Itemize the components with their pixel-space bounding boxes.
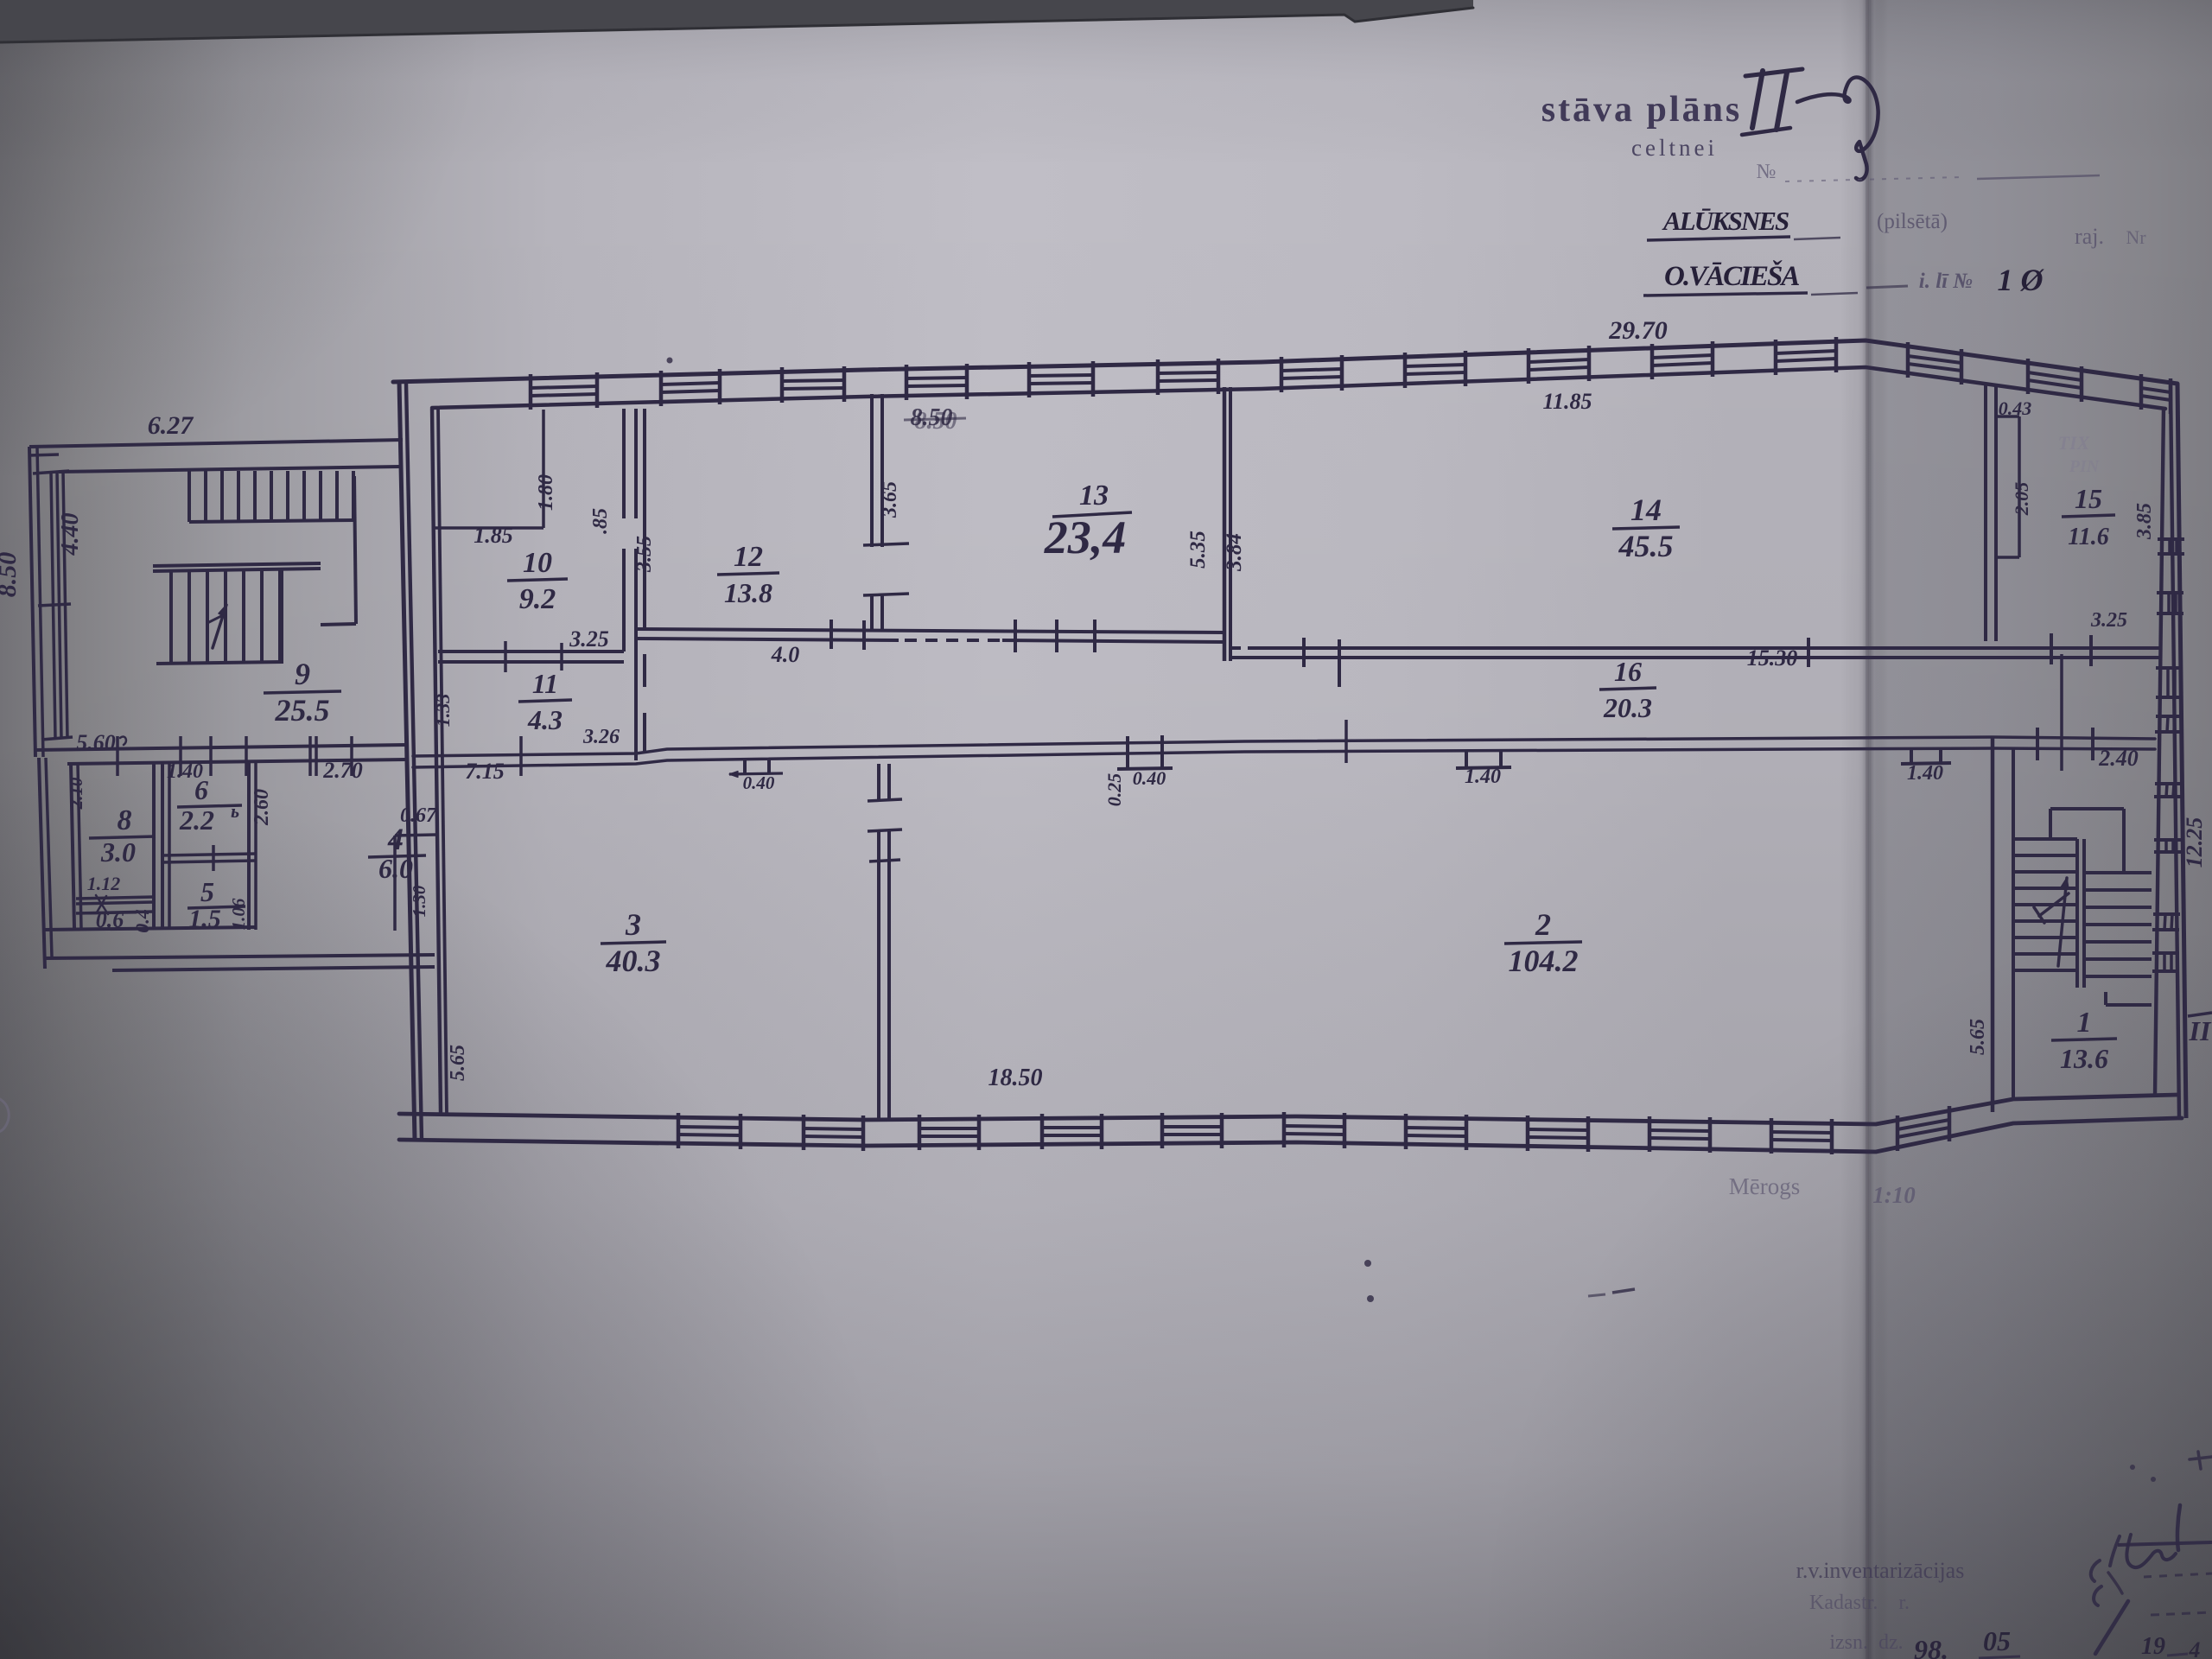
svg-text:№: № [1757,161,1777,183]
svg-text:1.80: 1.80 [535,474,557,511]
svg-text:40.3: 40.3 [606,944,661,978]
svg-text:2.10: 2.10 [66,777,86,810]
svg-text:5.65: 5.65 [1967,1019,1989,1055]
svg-text:0.40: 0.40 [743,772,775,793]
svg-text:8.50: 8.50 [0,552,22,598]
svg-text:Mērogs: Mērogs [1729,1173,1801,1199]
svg-text:2.70: 2.70 [322,758,363,783]
svg-text:1.40: 1.40 [1907,762,1943,785]
svg-text:98.: 98. [1914,1634,1948,1659]
svg-text:ь: ь [231,800,239,822]
svg-text:O.VĀCIEŠA: O.VĀCIEŠA [1664,259,1799,292]
svg-text:3.25: 3.25 [569,626,609,652]
svg-text:45.5: 45.5 [1618,529,1674,563]
svg-text:7.15: 7.15 [465,759,505,784]
svg-text:4: 4 [2189,1637,2201,1659]
svg-text:r.v.inventarizācijas: r.v.inventarizācijas [1796,1558,1965,1583]
svg-text:6.0: 6.0 [378,853,413,884]
svg-text:Nr: Nr [2126,226,2146,248]
svg-text:raj.: raj. [2075,224,2104,249]
svg-text:Kadastr. r.: Kadastr. r. [1809,1592,1910,1614]
svg-text:6.27: 6.27 [148,411,194,440]
svg-text:2.05: 2.05 [2011,482,2032,517]
svg-text:celtnei: celtnei [1631,135,1718,161]
svg-text:9.2: 9.2 [519,583,556,615]
svg-text:05: 05 [1983,1625,2011,1656]
svg-text:5.35: 5.35 [1186,531,1210,569]
svg-text:11.85: 11.85 [1542,389,1592,414]
svg-text:3.65: 3.65 [879,481,901,518]
svg-text:4: 4 [387,822,404,856]
svg-text:11.6: 11.6 [2068,524,2108,550]
svg-text:15.30: 15.30 [1747,645,1798,671]
svg-text:18.50: 18.50 [988,1065,1043,1091]
svg-text:.85: .85 [589,508,612,534]
svg-text:ALŪKSNES: ALŪKSNES [1662,206,1789,236]
svg-text:20.3: 20.3 [1603,692,1652,723]
svg-text:5.60: 5.60 [76,730,116,755]
svg-text:izsn. dz.: izsn. dz. [1829,1631,1903,1654]
svg-text:8.50: 8.50 [915,408,957,435]
svg-text:0.4: 0.4 [131,909,153,933]
svg-text:PIN: PIN [2069,457,2101,476]
svg-text:3.0: 3.0 [100,836,136,868]
svg-text:12.25: 12.25 [2182,817,2207,868]
svg-text:11: 11 [532,668,558,699]
svg-text:1:10: 1:10 [1872,1182,1916,1208]
svg-text:5: 5 [200,876,214,907]
svg-text:1.33: 1.33 [432,694,454,728]
svg-text:3.26: 3.26 [582,726,620,748]
svg-text:stāva plāns: stāva plāns [1541,90,1743,130]
svg-text:13.8: 13.8 [724,577,772,608]
svg-text:1: 1 [2077,1007,2092,1039]
svg-text:23,4: 23,4 [1044,512,1127,563]
svg-text:1 Ø: 1 Ø [1998,263,2045,297]
svg-text:3: 3 [625,907,641,942]
svg-text:12: 12 [734,541,763,573]
svg-text:TIX: TIX [2058,432,2091,454]
svg-text:(pilsētā): (pilsētā) [1877,210,1948,233]
svg-text:1.06: 1.06 [228,898,249,930]
svg-text:4.40: 4.40 [57,513,84,556]
svg-text:3.55: 3.55 [633,536,656,573]
svg-text:0.40: 0.40 [1133,767,1166,789]
svg-text:4.0: 4.0 [771,642,800,667]
svg-text:13.6: 13.6 [2060,1043,2108,1074]
svg-text:1.5: 1.5 [188,905,221,933]
svg-text:i. lī №: i. lī № [1919,270,1973,293]
svg-text:2: 2 [1535,907,1551,942]
svg-text:II: II [2189,1015,2212,1046]
svg-text:1.85: 1.85 [474,523,513,548]
svg-text:104.2: 104.2 [1509,944,1579,978]
svg-text:6: 6 [194,774,208,805]
svg-text:14: 14 [1630,493,1662,527]
svg-text:8: 8 [118,804,132,836]
svg-text:9: 9 [295,657,310,691]
svg-text:25.5: 25.5 [275,693,330,728]
svg-text:13: 13 [1079,480,1109,512]
svg-text:0.43: 0.43 [1999,397,2032,419]
svg-text:1.30: 1.30 [409,885,429,917]
svg-text:19: 19 [2141,1633,2165,1659]
svg-text:2.40: 2.40 [2098,746,2139,771]
svg-text:3.84: 3.84 [1223,533,1246,572]
svg-text:0.67: 0.67 [400,804,437,827]
svg-text:4.3: 4.3 [527,704,563,735]
svg-text:3.85: 3.85 [2133,503,2156,540]
svg-text:1.12: 1.12 [87,873,121,894]
svg-text:29.70: 29.70 [1608,316,1668,345]
svg-text:1.40: 1.40 [1465,766,1501,788]
svg-text:5.65: 5.65 [447,1045,469,1081]
svg-text:16: 16 [1614,656,1642,687]
svg-text:15: 15 [2075,483,2102,514]
svg-text:2.2: 2.2 [179,804,214,836]
svg-text:0.6: 0.6 [96,907,124,932]
svg-text:0.25: 0.25 [1103,773,1125,807]
svg-text:2.60: 2.60 [251,789,273,826]
svg-text:10: 10 [523,547,552,579]
svg-text:3.25: 3.25 [2090,609,2127,632]
